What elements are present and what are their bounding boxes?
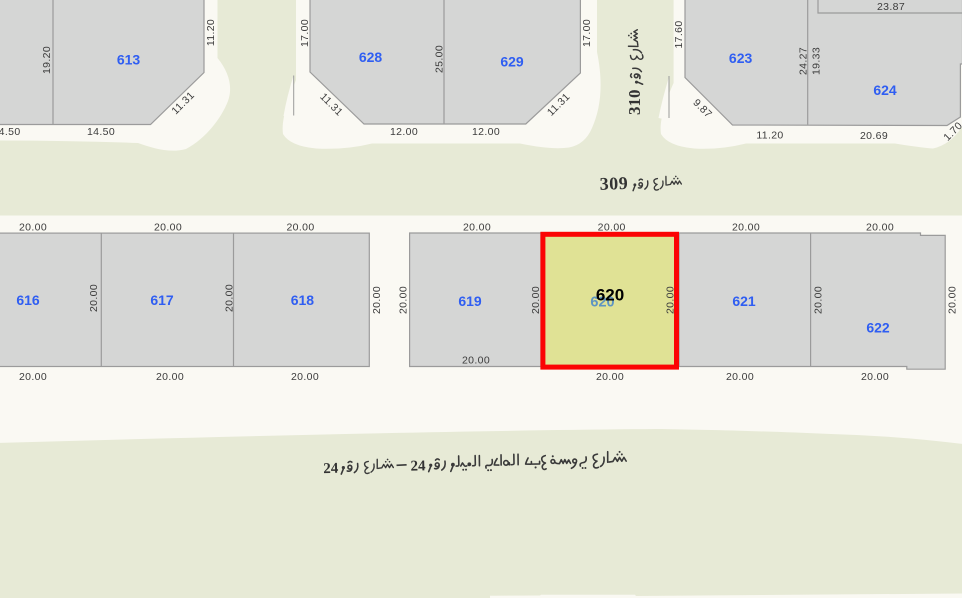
- svg-text:20.00: 20.00: [946, 286, 958, 314]
- svg-text:20.00: 20.00: [866, 222, 894, 234]
- svg-text:20.00: 20.00: [598, 222, 626, 234]
- svg-text:619: 619: [458, 293, 482, 309]
- svg-text:20.00: 20.00: [371, 286, 383, 314]
- svg-text:20.00: 20.00: [664, 286, 676, 314]
- svg-text:17.00: 17.00: [581, 19, 593, 47]
- svg-text:621: 621: [732, 293, 756, 309]
- svg-text:20.00: 20.00: [463, 222, 491, 234]
- svg-text:12.00: 12.00: [390, 126, 418, 138]
- svg-text:11.20: 11.20: [756, 130, 783, 142]
- svg-text:20.00: 20.00: [462, 355, 490, 367]
- svg-text:19.33: 19.33: [811, 47, 823, 75]
- svg-text:309: 309: [599, 173, 628, 194]
- svg-text:12.00: 12.00: [472, 126, 500, 138]
- svg-text:310: 310: [625, 90, 644, 116]
- svg-text:20.69: 20.69: [860, 130, 888, 142]
- svg-text:24.27: 24.27: [798, 47, 810, 75]
- svg-text:20.00: 20.00: [156, 371, 184, 383]
- svg-text:20.00: 20.00: [732, 222, 760, 234]
- svg-text:20.00: 20.00: [88, 284, 100, 312]
- svg-text:624: 624: [873, 82, 897, 98]
- svg-text:20.00: 20.00: [861, 371, 889, 383]
- svg-text:629: 629: [500, 53, 524, 69]
- svg-text:622: 622: [866, 319, 890, 335]
- svg-text:20.00: 20.00: [530, 286, 542, 314]
- svg-text:20.00: 20.00: [224, 284, 236, 312]
- svg-text:14.50: 14.50: [0, 126, 21, 138]
- svg-text:20.00: 20.00: [19, 371, 47, 383]
- svg-text:620: 620: [596, 286, 624, 305]
- svg-text:17.00: 17.00: [299, 19, 311, 47]
- svg-text:25.00: 25.00: [434, 45, 446, 73]
- svg-text:616: 616: [16, 292, 40, 308]
- svg-text:613: 613: [117, 51, 141, 67]
- svg-text:23.87: 23.87: [877, 1, 905, 13]
- svg-text:11.20: 11.20: [205, 19, 217, 46]
- svg-text:24: 24: [410, 458, 426, 474]
- svg-text:20.00: 20.00: [596, 371, 624, 383]
- svg-text:20.00: 20.00: [726, 371, 754, 383]
- svg-text:24: 24: [323, 461, 339, 477]
- svg-text:14.50: 14.50: [87, 126, 115, 138]
- svg-text:20.00: 20.00: [19, 222, 47, 234]
- svg-text:617: 617: [150, 292, 174, 308]
- svg-text:17.60: 17.60: [673, 20, 685, 48]
- svg-text:20.00: 20.00: [154, 222, 182, 234]
- svg-text:623: 623: [729, 50, 753, 66]
- svg-text:20.00: 20.00: [813, 286, 825, 314]
- svg-text:19.20: 19.20: [41, 46, 53, 74]
- svg-text:628: 628: [359, 49, 383, 65]
- svg-text:20.00: 20.00: [398, 286, 410, 314]
- svg-text:20.00: 20.00: [291, 371, 319, 383]
- svg-text:20.00: 20.00: [286, 222, 314, 234]
- svg-text:618: 618: [291, 292, 315, 308]
